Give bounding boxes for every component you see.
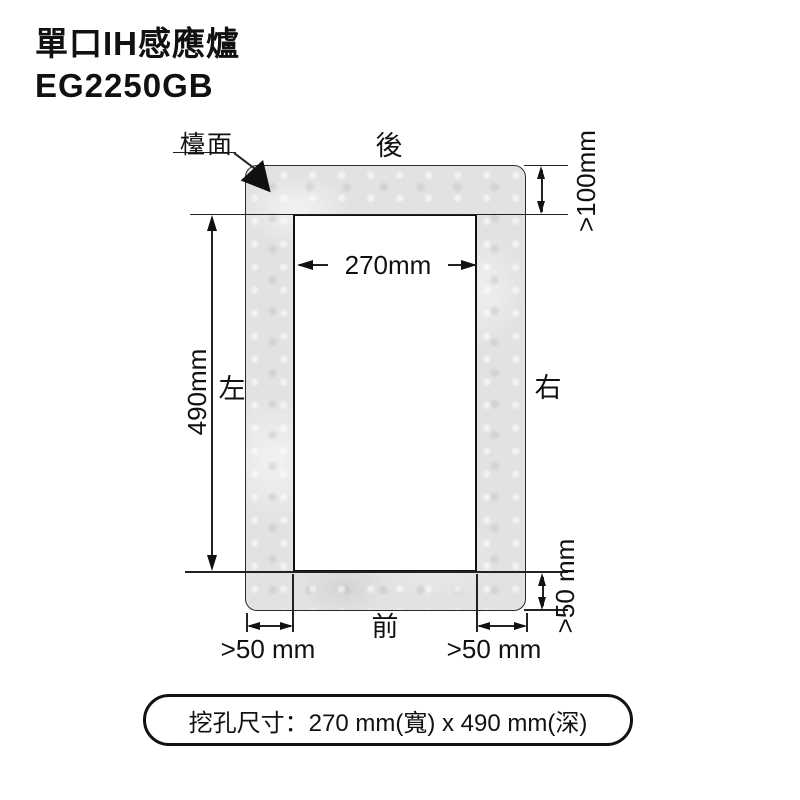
dim-arrow-front-bottom-icon (538, 597, 546, 610)
dim-text-front-clearance: >50 mm (551, 526, 581, 646)
dim-text-width: 270mm (328, 251, 448, 279)
cutout-size-caption: 挖孔尺寸：270 mm(寬) x 490 mm(深) (143, 694, 633, 746)
dim-arrow-right-out-icon (514, 622, 527, 630)
dim-arrow-width-right-icon (461, 260, 477, 270)
dim-arrow-left-out-icon (247, 622, 260, 630)
dim-arrow-right-in-icon (477, 622, 490, 630)
product-model: EG2250GB (35, 66, 240, 106)
product-title: 單口IH感應爐 (35, 22, 240, 66)
installation-spec-page: 單口IH感應爐 EG2250GB 檯面 後 前 左 右 490mm 270mm … (0, 0, 800, 800)
dim-arrow-rear-bottom-icon (537, 201, 545, 214)
dim-text-rear-clearance: >100mm (572, 120, 602, 242)
dim-arrow-depth-bottom-icon (207, 555, 217, 571)
left-side-label: 左 (212, 374, 252, 404)
dim-arrow-front-top-icon (538, 573, 546, 586)
header: 單口IH感應爐 EG2250GB (35, 22, 240, 106)
right-side-label: 右 (528, 373, 568, 403)
ext-line-cutout-bottom (185, 571, 568, 573)
dim-text-depth: 490mm (183, 332, 213, 452)
dim-arrow-rear-top-icon (537, 166, 545, 179)
ext-line-counter-top (524, 165, 568, 167)
dim-arrow-left-in-icon (280, 622, 293, 630)
dim-arrow-width-left-icon (297, 260, 313, 270)
front-side-label: 前 (365, 612, 405, 642)
rear-side-label: 後 (369, 131, 409, 161)
dim-text-right-clearance: >50 mm (434, 635, 554, 663)
ext-line-cutout-top (190, 214, 568, 216)
dim-arrow-depth-top-icon (207, 215, 217, 231)
dim-text-left-clearance: >50 mm (208, 635, 328, 663)
countertop-label: 檯面 (172, 125, 242, 161)
